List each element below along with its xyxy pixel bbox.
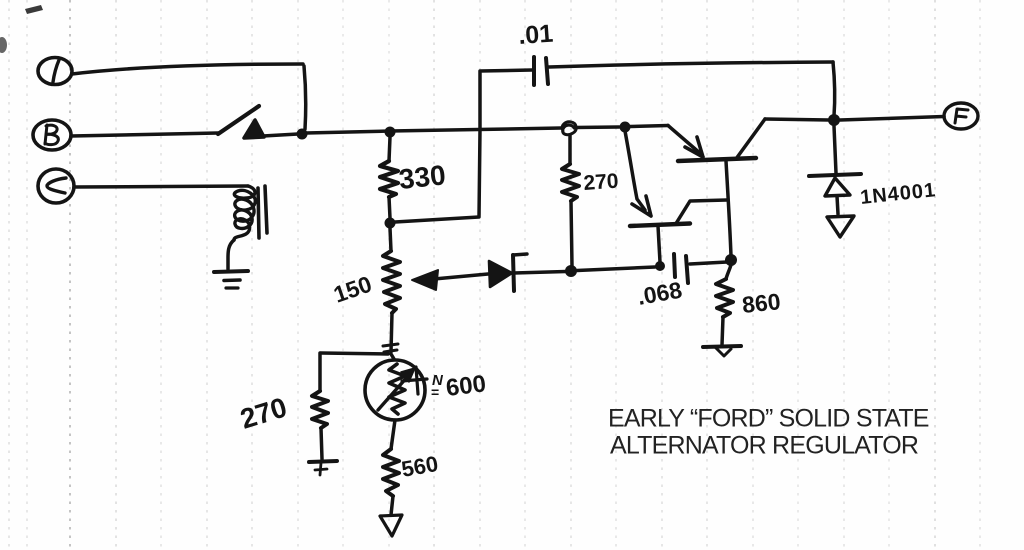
- svg-text:.068: .068: [635, 277, 684, 310]
- svg-text:ALTERNATOR REGULATOR: ALTERNATOR REGULATOR: [610, 432, 918, 460]
- svg-text:270: 270: [237, 391, 291, 434]
- svg-text:.01: .01: [517, 20, 554, 50]
- svg-text:270: 270: [583, 170, 620, 195]
- svg-text:1N4001: 1N4001: [859, 179, 937, 209]
- svg-text:EARLY “FORD” SOLID STATE: EARLY “FORD” SOLID STATE: [608, 405, 929, 433]
- svg-text:600: 600: [444, 370, 487, 402]
- svg-text:860: 860: [741, 288, 782, 318]
- svg-text:=: =: [431, 384, 439, 400]
- svg-text:330: 330: [397, 159, 447, 195]
- svg-text:150: 150: [330, 271, 375, 308]
